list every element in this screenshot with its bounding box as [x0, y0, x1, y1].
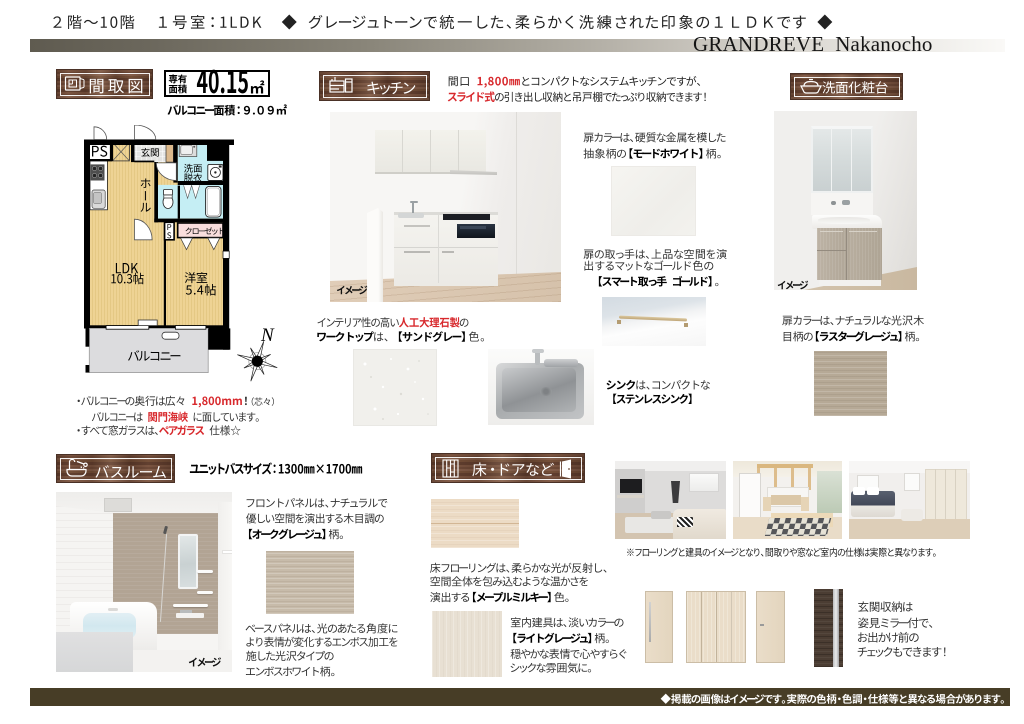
svg-text:N: N [260, 325, 275, 346]
